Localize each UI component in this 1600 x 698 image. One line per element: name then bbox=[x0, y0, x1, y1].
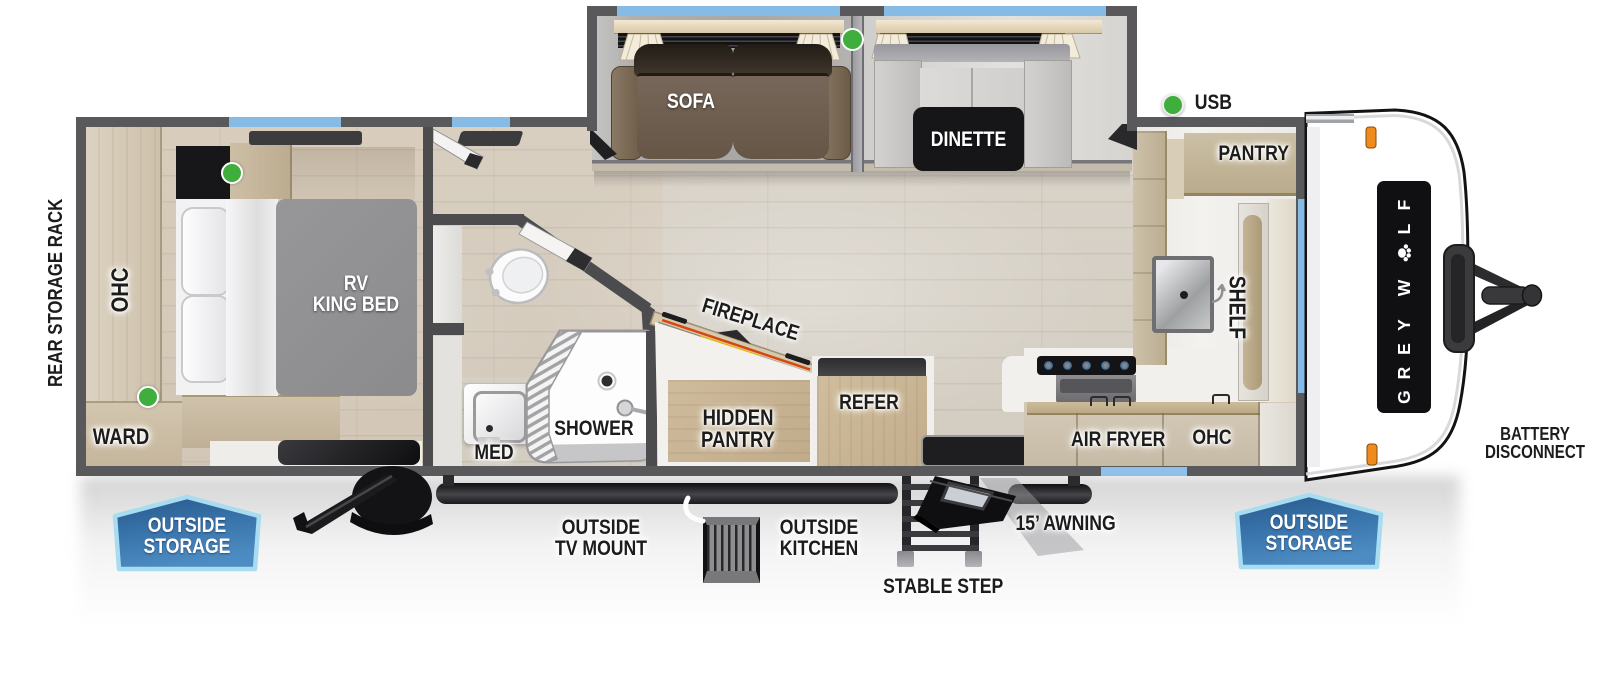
svg-text:Y: Y bbox=[1394, 319, 1414, 331]
svg-text:L: L bbox=[1394, 223, 1414, 234]
svg-text:W: W bbox=[1394, 279, 1414, 296]
svg-text:E: E bbox=[1394, 343, 1414, 355]
svg-text:F: F bbox=[1394, 199, 1414, 210]
svg-text:R: R bbox=[1394, 366, 1414, 379]
svg-text:G: G bbox=[1394, 390, 1414, 404]
